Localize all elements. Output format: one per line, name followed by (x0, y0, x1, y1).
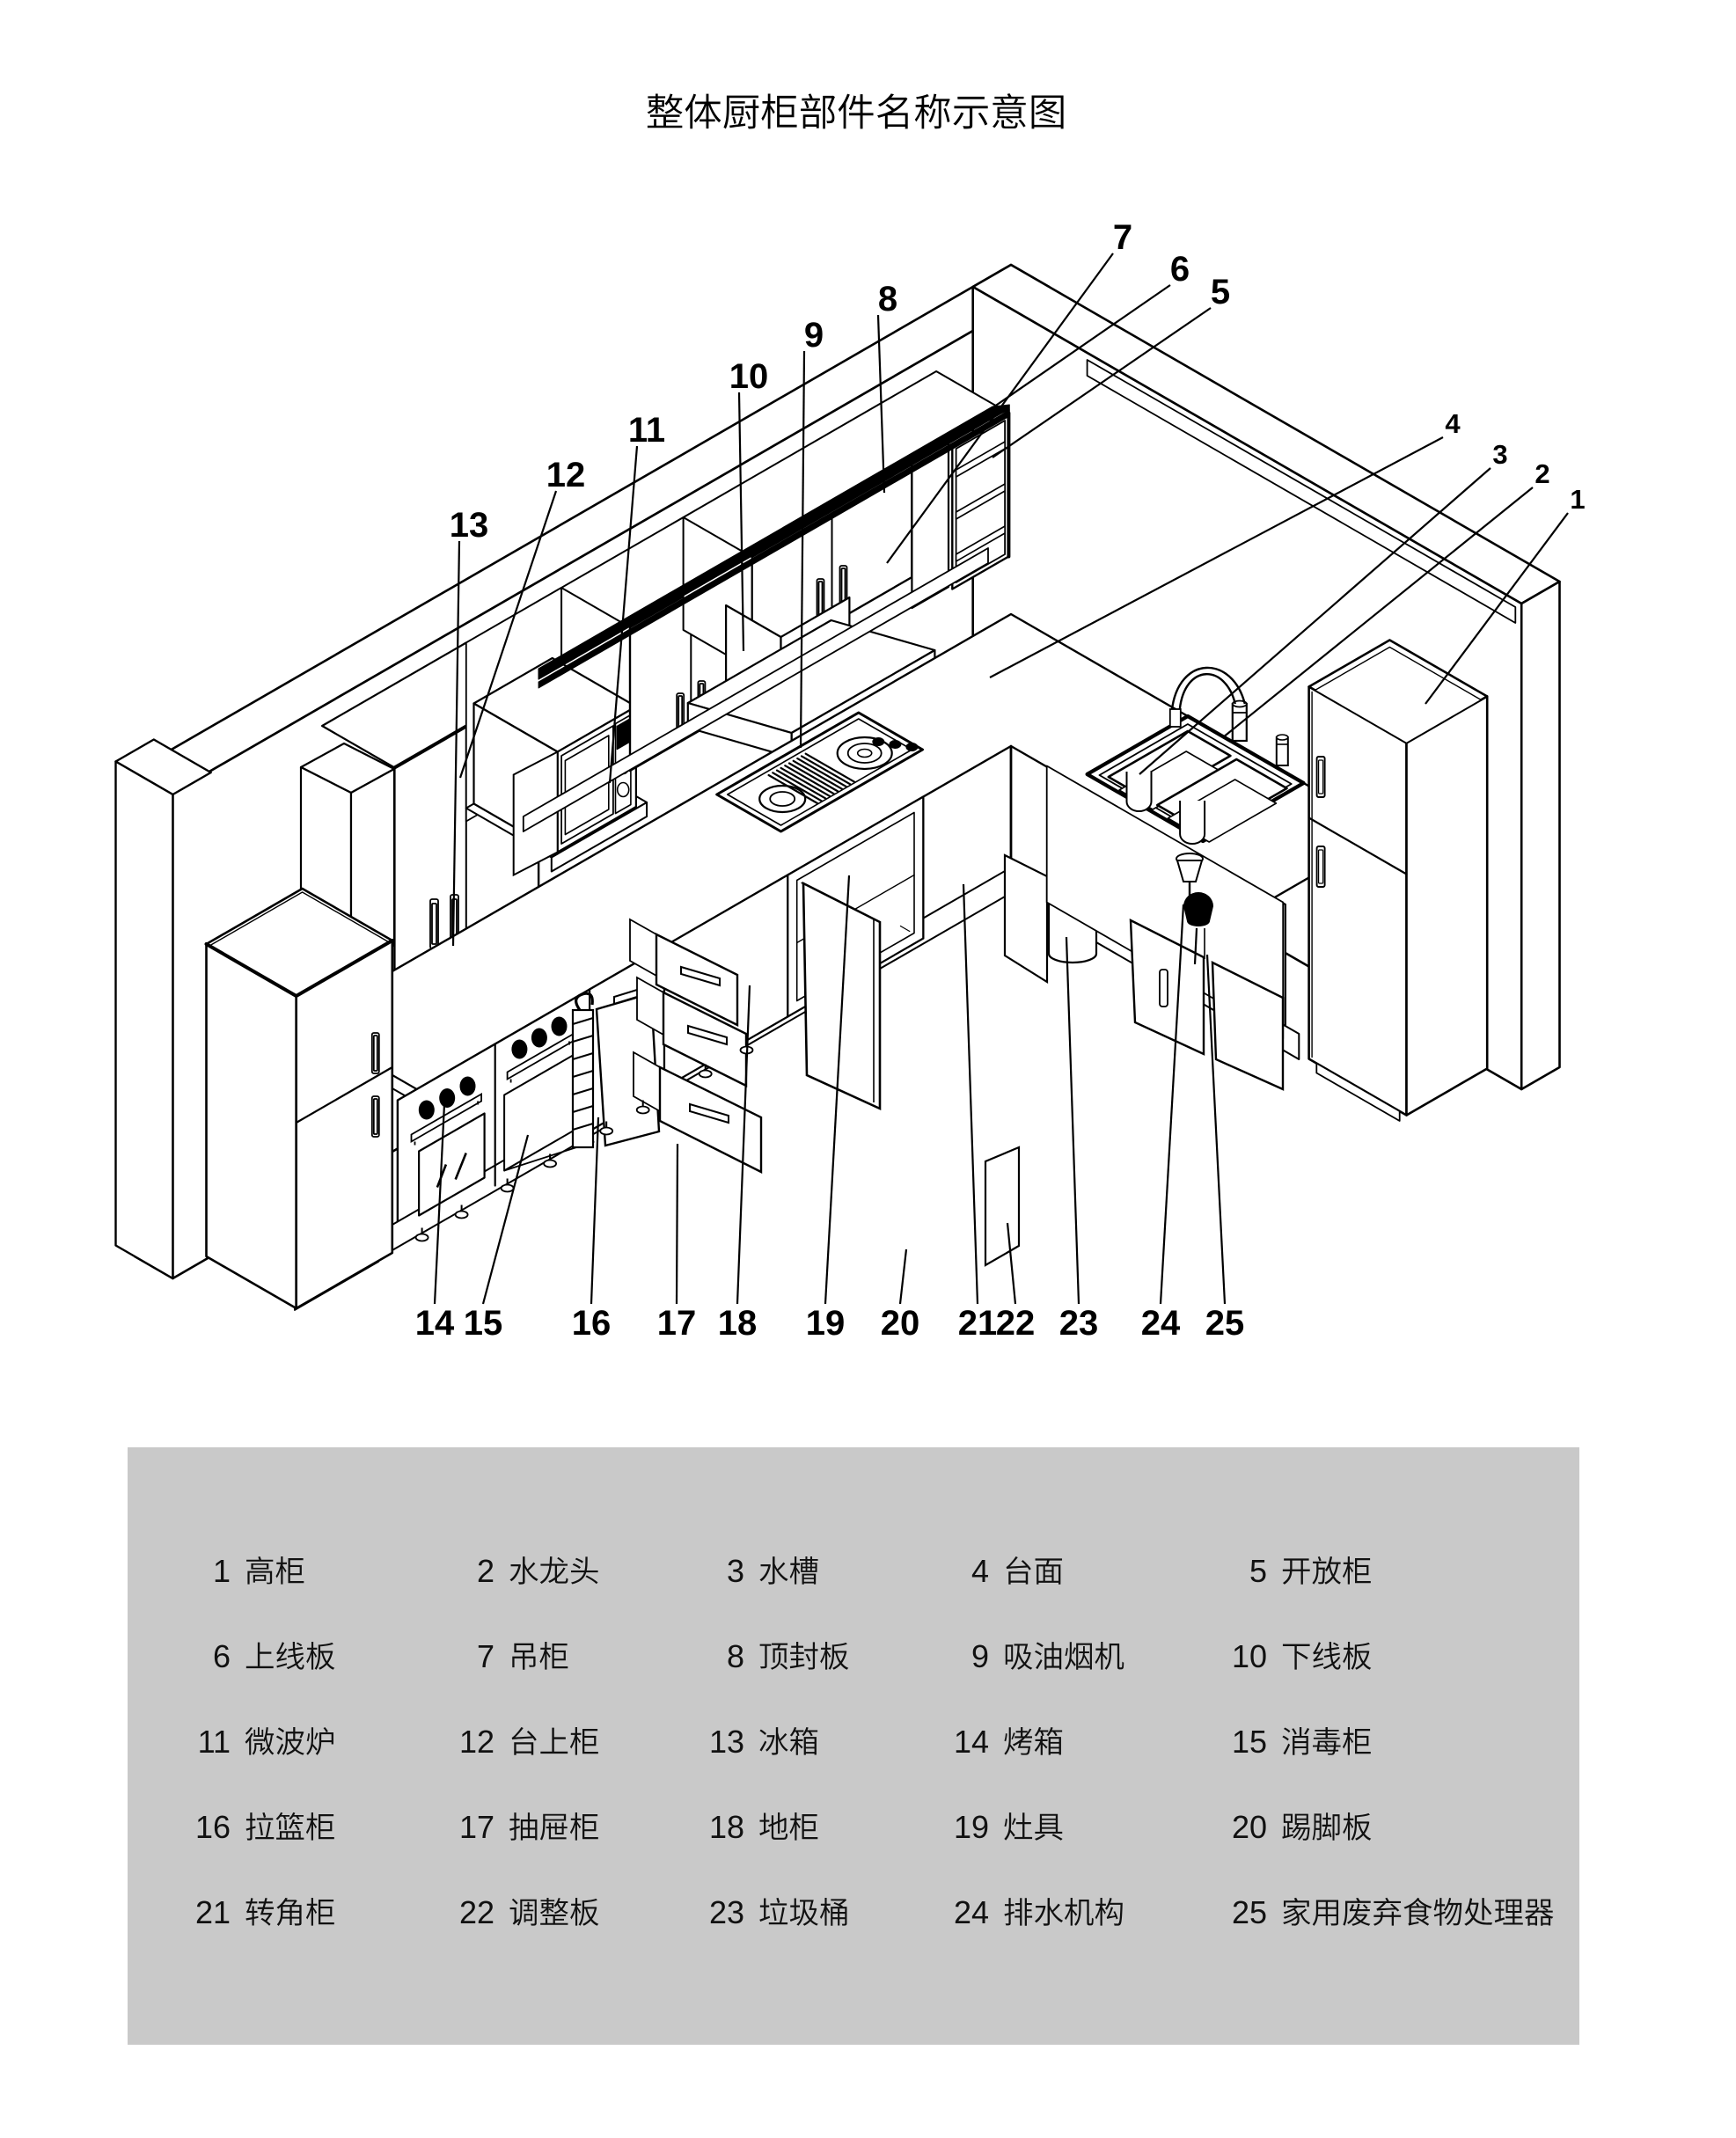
svg-text:23: 23 (709, 1894, 744, 1930)
svg-text:17: 17 (459, 1809, 494, 1845)
svg-text:2: 2 (477, 1553, 494, 1589)
svg-text:16: 16 (572, 1304, 612, 1343)
svg-text:4: 4 (1445, 408, 1461, 439)
svg-text:8: 8 (878, 280, 897, 319)
svg-text:19: 19 (806, 1304, 846, 1343)
svg-text:11: 11 (628, 411, 665, 450)
svg-text:20: 20 (1232, 1809, 1267, 1845)
svg-text:25: 25 (1232, 1894, 1267, 1930)
svg-text:9: 9 (971, 1638, 989, 1674)
svg-text:24: 24 (954, 1894, 989, 1930)
svg-text:6: 6 (1170, 250, 1190, 289)
svg-text:17: 17 (657, 1304, 697, 1343)
svg-text:22: 22 (996, 1304, 1036, 1343)
svg-text:10: 10 (729, 357, 769, 396)
svg-text:15: 15 (1232, 1724, 1267, 1760)
svg-text:15: 15 (464, 1304, 503, 1343)
svg-text:3: 3 (1492, 439, 1507, 470)
svg-text:13: 13 (709, 1724, 744, 1760)
svg-text:16: 16 (195, 1809, 231, 1845)
svg-text:18: 18 (718, 1304, 758, 1343)
svg-text:4: 4 (971, 1553, 989, 1589)
svg-text:21: 21 (195, 1894, 231, 1930)
svg-text:12: 12 (546, 456, 586, 494)
svg-text:1: 1 (213, 1553, 231, 1589)
svg-text:11: 11 (198, 1724, 231, 1760)
svg-text:14: 14 (954, 1724, 989, 1760)
svg-text:9: 9 (804, 316, 824, 355)
svg-text:18: 18 (709, 1809, 744, 1845)
svg-text:1: 1 (1570, 484, 1585, 515)
svg-text:7: 7 (477, 1638, 494, 1674)
svg-text:22: 22 (459, 1894, 494, 1930)
svg-text:19: 19 (954, 1809, 989, 1845)
svg-text:5: 5 (1211, 273, 1230, 311)
svg-text:10: 10 (1232, 1638, 1267, 1674)
svg-text:14: 14 (415, 1304, 455, 1343)
svg-text:7: 7 (1113, 218, 1132, 257)
svg-text:2: 2 (1535, 458, 1549, 489)
svg-text:12: 12 (459, 1724, 494, 1760)
svg-text:5: 5 (1249, 1553, 1267, 1589)
svg-text:23: 23 (1059, 1304, 1099, 1343)
svg-text:13: 13 (450, 506, 489, 545)
svg-text:21: 21 (958, 1304, 998, 1343)
svg-text:3: 3 (727, 1553, 744, 1589)
svg-text:6: 6 (213, 1638, 231, 1674)
svg-text:20: 20 (881, 1304, 920, 1343)
svg-text:8: 8 (727, 1638, 744, 1674)
svg-text:25: 25 (1205, 1304, 1245, 1343)
svg-text:24: 24 (1141, 1304, 1181, 1343)
